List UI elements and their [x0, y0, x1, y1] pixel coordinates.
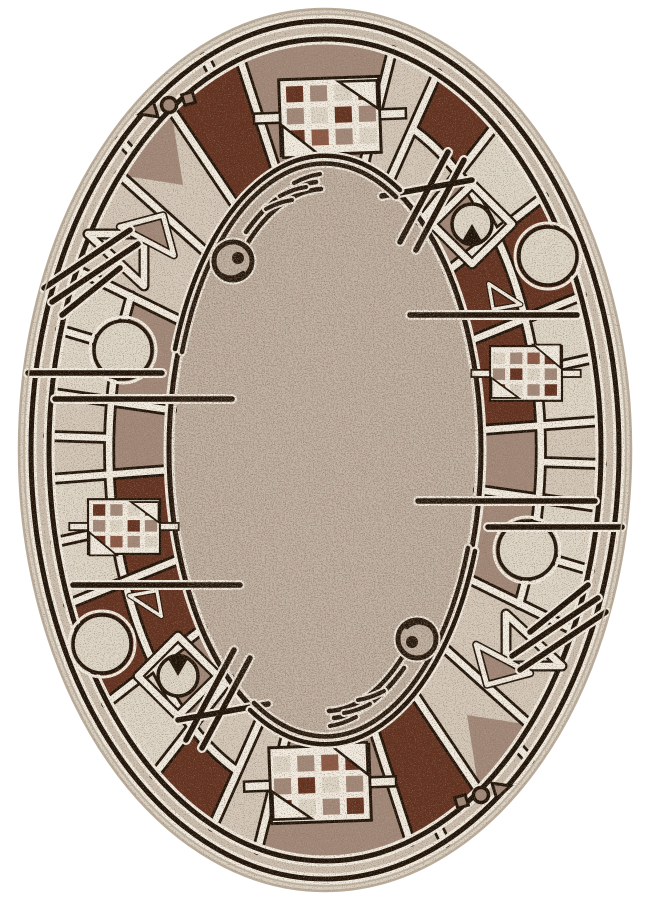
rug-product-photo — [0, 0, 650, 900]
rug-image — [0, 0, 650, 900]
